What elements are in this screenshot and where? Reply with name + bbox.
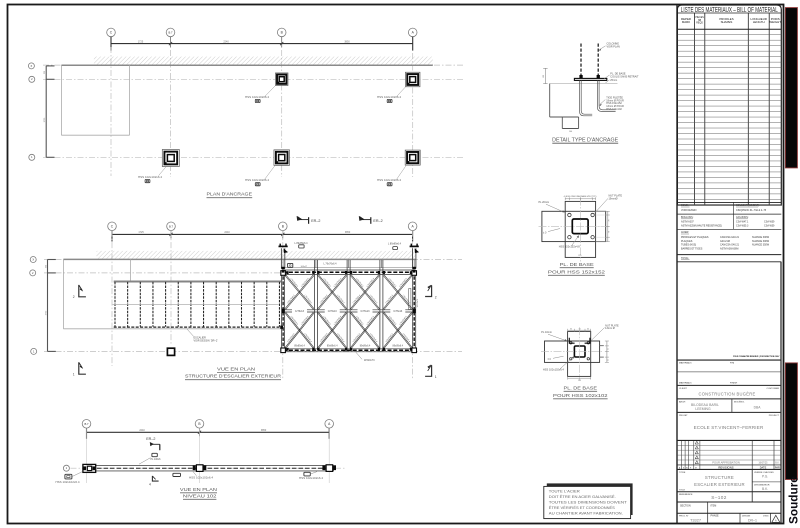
svg-text:S–102: S–102 — [711, 495, 727, 500]
svg-text:B.K.: B.K. — [775, 463, 780, 465]
svg-text:W310x74: W310x74 — [417, 298, 419, 307]
svg-text:STRUCTURE D'ESCALIER EXTERIE: STRUCTURE D'ESCALIER EXTERIEUR — [185, 374, 282, 379]
svg-text:DOIT ÊTRE EN ACIER GALVANI: DOIT ÊTRE EN ACIER GALVANISÉ. — [549, 494, 616, 499]
svg-text:TITRE: TITRE — [679, 472, 686, 474]
svg-text:1725: 1725 — [138, 40, 144, 43]
svg-text:HSS 102x102x6.4: HSS 102x102x6.4 — [377, 96, 402, 99]
svg-text:PLAQUES: PLAQUES — [681, 240, 693, 243]
svg-text:2240: 2240 — [139, 429, 145, 432]
svg-text:PL 100x6: PL 100x6 — [150, 458, 161, 461]
svg-text:ER–2: ER–2 — [373, 219, 382, 223]
svg-text:FINI: FINI — [730, 363, 735, 365]
svg-text:X: X — [31, 64, 33, 68]
svg-text:VOIR DESSIN: VOIR DESSIN — [681, 209, 697, 212]
svg-text:PROJ. N°: PROJ. N° — [679, 516, 689, 518]
svg-text:LENGTH: LENGTH — [753, 20, 765, 24]
svg-text:BILODEAU BARIL: BILODEAU BARIL — [691, 403, 719, 407]
svg-text:89x89x6.4: 89x89x6.4 — [360, 346, 371, 348]
svg-text:REQD: REQD — [696, 22, 703, 24]
svg-text:1: 1 — [435, 375, 437, 379]
svg-text:3850: 3850 — [345, 231, 351, 234]
svg-text:C/76x13: C/76x13 — [393, 310, 403, 313]
svg-text:PLAN D'ANCRAGE: PLAN D'ANCRAGE — [207, 192, 253, 197]
svg-text:L 89x89x6.4: L 89x89x6.4 — [295, 242, 309, 245]
svg-text:C/76x13: C/76x13 — [328, 310, 338, 313]
svg-text:TOUTE L'ACIER: TOUTE L'ACIER — [549, 489, 580, 493]
svg-text:B.K.: B.K. — [762, 487, 768, 491]
svg-text:35: 35 — [570, 328, 572, 330]
svg-text:L 89x89x6.4: L 89x89x6.4 — [388, 243, 402, 246]
svg-text:16/07/25: 16/07/25 — [759, 463, 769, 465]
svg-text:C/76x13: C/76x13 — [295, 310, 305, 313]
svg-text:P.G.: P.G. — [762, 475, 768, 479]
svg-text:NUANCE 300W: NUANCE 300W — [752, 236, 770, 239]
svg-text:275: 275 — [578, 255, 581, 257]
svg-text:CSA W47.1: CSA W47.1 — [736, 221, 749, 224]
svg-text:SECTION: SECTION — [680, 505, 691, 508]
svg-text:DR–1: DR–1 — [748, 518, 757, 522]
svg-text:MARK: MARK — [682, 20, 690, 24]
svg-text:HSS 152x152x4.8: HSS 152x152x4.8 — [559, 245, 580, 249]
svg-text:PL 10mm: PL 10mm — [541, 331, 552, 334]
svg-text:51: 51 — [579, 328, 581, 330]
svg-text:ÊTRE VÉRIFIÉS ET COORDONNÉS: ÊTRE VÉRIFIÉS ET COORDONNÉS — [549, 505, 616, 510]
svg-text:ESCALIER EXTERIEUR: ESCALIER EXTERIEUR — [694, 482, 745, 487]
svg-text:HSS 102x102x6.4: HSS 102x102x6.4 — [245, 96, 270, 99]
svg-text:NIVEAU 102: NIVEAU 102 — [183, 494, 217, 499]
svg-text:HSS 102x102x6.4: HSS 102x102x6.4 — [299, 477, 324, 480]
svg-text:2240: 2240 — [223, 40, 229, 43]
svg-text:B.7: B.7 — [168, 30, 173, 34]
svg-text:PROFILES ET PLAQUES: PROFILES ET PLAQUES — [681, 236, 709, 239]
svg-text:108x17: 108x17 — [301, 266, 308, 268]
svg-text:CAN/CSA G40.21: CAN/CSA G40.21 — [720, 236, 740, 239]
svg-text:1: 1 — [73, 372, 75, 376]
svg-text:DBA: DBA — [754, 406, 762, 410]
svg-text:BOULONS:: BOULONS: — [681, 216, 694, 219]
svg-text:VOIR DESSIN ‘DR–2’: VOIR DESSIN ‘DR–2’ — [194, 339, 219, 342]
svg-text:19mmØ: 19mmØ — [609, 197, 618, 200]
svg-text:ARCH:: ARCH: — [679, 400, 686, 403]
svg-text:AU CHANTIER AVANT FABRICATI: AU CHANTIER AVANT FABRICATION. — [549, 511, 623, 515]
svg-text:2240: 2240 — [224, 231, 230, 234]
svg-text:CUSTOMER: CUSTOMER — [767, 388, 780, 390]
svg-text:C/76x13: C/76x13 — [361, 310, 371, 313]
svg-text:PL. DE BASE: PL. DE BASE — [560, 262, 594, 267]
svg-text:ECOLE ST.VINCENT–FERRIER: ECOLE ST.VINCENT–FERRIER — [694, 425, 764, 430]
svg-text:CONSTRUCTION BUGÈRE: CONSTRUCTION BUGÈRE — [698, 391, 755, 396]
svg-text:T3327: T3327 — [690, 517, 701, 522]
svg-text:COULEUR (CIMENT):: COULEUR (CIMENT): — [736, 204, 760, 207]
svg-text:STRUCTURE: STRUCTURE — [705, 475, 734, 480]
svg-text:76: 76 — [609, 220, 611, 222]
svg-text:TOTAL:: TOTAL: — [681, 257, 689, 260]
svg-text:G40.21M: G40.21M — [720, 240, 730, 243]
svg-text:VUE EN PLAN: VUE EN PLAN — [217, 367, 255, 372]
svg-text:B.7: B.7 — [84, 422, 89, 426]
svg-text:REFERENCE: REFERENCE — [679, 494, 693, 496]
svg-text:POUR HSS 102x102: POUR HSS 102x102 — [553, 393, 608, 398]
svg-text:L 76x76x6.4: L 76x76x6.4 — [324, 263, 338, 266]
svg-text:HSS 102x102: HSS 102x102 — [606, 108, 622, 111]
svg-text:HSS 102x102x6.4: HSS 102x102x6.4 — [245, 179, 270, 182]
svg-text:PROJECT: PROJECT — [769, 415, 780, 417]
svg-text:CLIENT: CLIENT — [679, 388, 687, 390]
svg-text:WEIGHT: WEIGHT — [769, 20, 781, 24]
svg-text:CAN/CSA G40.21: CAN/CSA G40.21 — [720, 244, 740, 247]
svg-text:W310x73: W310x73 — [364, 359, 375, 362]
svg-text:X: X — [32, 257, 34, 261]
svg-text:HSS 102x102x6.4: HSS 102x102x6.4 — [56, 481, 81, 484]
svg-text:FINISH: FINISH — [730, 383, 738, 385]
svg-text:35: 35 — [587, 328, 589, 330]
svg-text:PHASE: PHASE — [711, 515, 720, 518]
svg-text:REVISIONS: REVISIONS — [718, 465, 733, 469]
svg-text:ASTM A36/A36M: ASTM A36/A36M — [720, 248, 738, 251]
svg-text:PROJET: PROJET — [679, 415, 688, 417]
svg-text:2: 2 — [73, 295, 75, 299]
svg-text:SHAPES: SHAPES — [721, 20, 733, 24]
svg-text:203: 203 — [578, 380, 581, 382]
svg-text:MATERIAUX: MATERIAUX — [679, 382, 692, 385]
svg-text:VUE EN PLAN: VUE EN PLAN — [180, 487, 217, 492]
svg-text:13mm Ø: 13mm Ø — [605, 327, 615, 330]
svg-text:ING./ÉNG.: ING./ÉNG. — [734, 400, 745, 403]
svg-text:POUR CONNAITRE RESERVE | FOR D: POUR CONNAITRE RESERVE | FOR DIRECTION O… — [733, 355, 780, 358]
svg-text:89x89x6.4: 89x89x6.4 — [294, 346, 305, 348]
svg-text:ACIER:: ACIER: — [681, 231, 689, 234]
svg-text:POUR APPROBATION: POUR APPROBATION — [712, 461, 740, 465]
svg-text:4: 4 — [149, 482, 151, 486]
svg-text:TITLE: TITLE — [679, 489, 685, 491]
svg-text:HSS 102x102x6.4: HSS 102x102x6.4 — [189, 477, 214, 480]
svg-text:CSA W55.3: CSA W55.3 — [736, 225, 749, 228]
svg-text:76: 76 — [609, 231, 611, 233]
svg-text:HSS 102x102x6.4: HSS 102x102x6.4 — [377, 179, 402, 182]
svg-text:DETAIL TYPE D'ANCRAGE: DETAIL TYPE D'ANCRAGE — [552, 137, 619, 143]
svg-text:25mm: 25mm — [610, 79, 617, 82]
svg-text:89x89x6.4: 89x89x6.4 — [327, 346, 338, 348]
svg-text:CSA W59: CSA W59 — [764, 225, 775, 228]
svg-text:89x89x6.4: 89x89x6.4 — [392, 346, 403, 348]
svg-text:ASTM A307: ASTM A307 — [681, 221, 694, 224]
svg-text:ASTM A325M (HAUTE RESISTANCE): ASTM A325M (HAUTE RESISTANCE) — [681, 225, 722, 228]
svg-text:BARRES ET TIGES: BARRES ET TIGES — [681, 248, 703, 251]
svg-text:LEEMING: LEEMING — [695, 407, 711, 411]
svg-text:POUR HSS 152x152: POUR HSS 152x152 — [548, 269, 605, 274]
svg-text:1725: 1725 — [138, 231, 144, 234]
svg-text:51: 51 — [608, 359, 610, 361]
svg-text:3850: 3850 — [344, 40, 350, 43]
svg-text:ITEM: ITEM — [711, 505, 717, 508]
svg-text:HSS 102x102x6.4: HSS 102x102x6.4 — [138, 176, 163, 179]
svg-text:DWG: DWG — [763, 516, 769, 518]
svg-text:MATERIAUX: MATERIAUX — [679, 362, 692, 365]
svg-text:ER–2: ER–2 — [311, 219, 320, 223]
svg-text:51: 51 — [608, 348, 610, 350]
svg-text:PL. DE BASE: PL. DE BASE — [564, 386, 598, 391]
svg-text:VOIR PLAN: VOIR PLAN — [607, 45, 621, 48]
svg-text:3850: 3850 — [261, 429, 267, 432]
svg-text:NUANCE 300W: NUANCE 300W — [752, 240, 770, 243]
svg-text:SOUD.:: SOUD.: — [681, 204, 690, 207]
svg-text:PL 20mm: PL 20mm — [539, 201, 550, 204]
svg-text:LISTE DES MATERIAUX – BILL O: LISTE DES MATERIAUX – BILL OF MATERIAL — [681, 5, 778, 14]
svg-text:4–BOULONS D'ANCRAGE Ø19 (TYP.): 4–BOULONS D'ANCRAGE Ø19 (TYP.) — [564, 195, 597, 198]
svg-text:TUBES (HSS): TUBES (HSS) — [681, 244, 696, 247]
svg-text:Soudure: Soudure — [787, 476, 800, 524]
svg-text:ER–2: ER–2 — [146, 437, 155, 441]
svg-text:NUANCE 350W: NUANCE 350W — [752, 244, 770, 247]
svg-text:CINQ/PANC #1–73A & 2–75: CINQ/PANC #1–73A & 2–75 — [736, 209, 767, 212]
svg-text:B.7: B.7 — [169, 224, 174, 228]
svg-text:GOUJONS:: GOUJONS: — [736, 216, 749, 219]
svg-text:CSA W59: CSA W59 — [764, 221, 775, 224]
svg-text:2: 2 — [435, 295, 437, 299]
svg-text:TOUTES LES DIMENSIONS DOIVE: TOUTES LES DIMENSIONS DOIVENT — [549, 500, 628, 504]
